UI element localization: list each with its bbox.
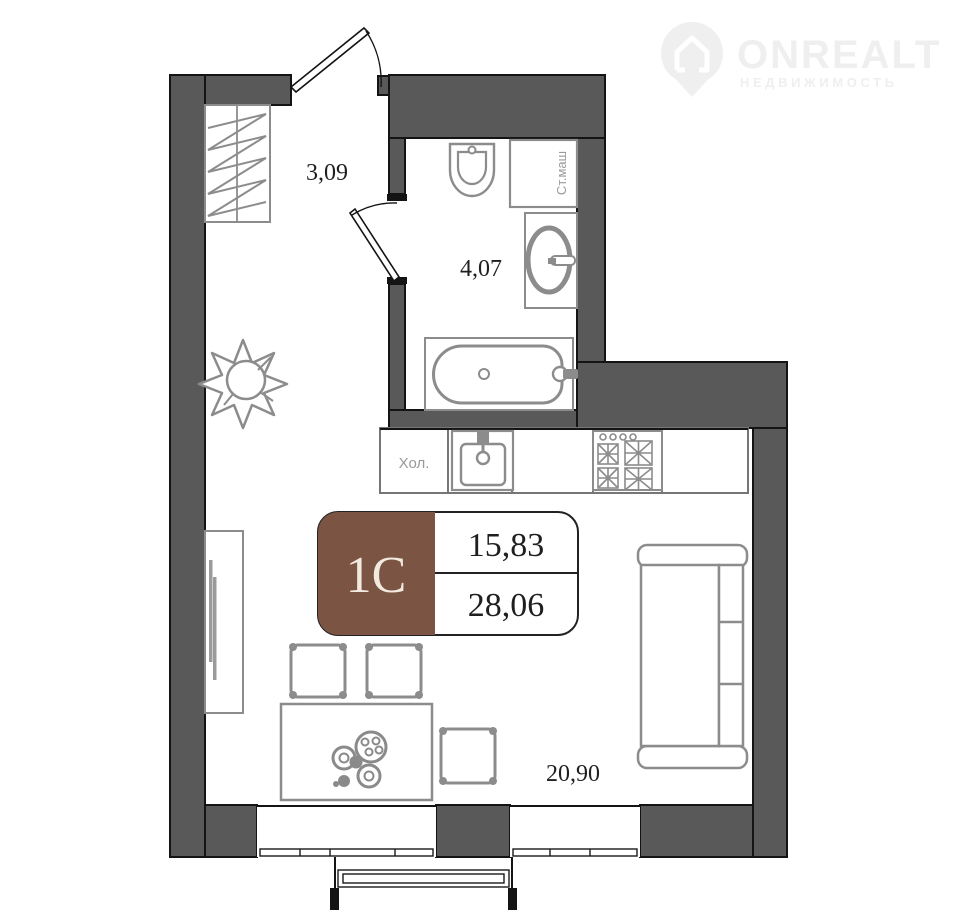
plant [199,340,287,428]
room-area-value: 15,83 [468,527,545,564]
chair [289,643,347,699]
balcony [330,857,517,910]
closet [205,531,243,713]
wall-left [170,75,205,857]
brand-watermark: ONREALT НЕДВИЖИМОСТЬ [661,22,941,97]
chair [365,643,423,699]
unit-badge: 1С 15,83 28,06 [318,512,578,635]
wall-entry-jamb [378,76,389,95]
wall-bath-right [577,138,605,362]
brand-tagline: НЕДВИЖИМОСТЬ [740,75,898,90]
brand-pin-icon [661,22,723,97]
floor-plan: ONREALT НЕДВИЖИМОСТЬ [0,0,960,910]
hallway-area-label: 3,09 [306,160,348,186]
total-area-value: 28,06 [468,587,545,624]
unit-number: 1С [346,547,407,604]
kitchen-counter: Хол. [380,428,748,493]
kitchen-sink [452,430,513,490]
wall-bath-bottom [389,410,577,428]
dining-table [281,704,432,800]
wall-top-left [205,75,291,105]
bathroom-sink [525,213,577,308]
fridge-label: Хол. [399,455,430,472]
washing-machine-label: Ст.маш [554,151,569,195]
washing-machine: Ст.маш [510,140,577,207]
brand-name: ONREALT [737,33,941,77]
wall-top-right [389,75,605,138]
bathroom-door [350,194,407,284]
bathroom-area-label: 4,07 [460,256,502,282]
toilet [450,144,494,196]
chair [439,727,497,785]
bathtub [425,338,578,410]
wall-bath-divider-upper [389,138,405,194]
wall-right [753,428,787,857]
hallway-wardrobe [205,105,270,222]
window-left [257,805,436,857]
wall-bottom-right [640,805,753,857]
floor-plan-page: ONREALT НЕДВИЖИМОСТЬ [0,0,960,910]
wall-bottom-pier [436,805,510,857]
living-area-label: 20,90 [546,761,600,787]
stove [593,431,662,490]
wall-bottom-left [205,805,257,857]
wall-right-extension [577,362,787,428]
wall-bath-divider-lower [389,284,405,410]
window-right [510,805,640,857]
sofa [638,545,747,768]
entry-door [291,28,381,92]
